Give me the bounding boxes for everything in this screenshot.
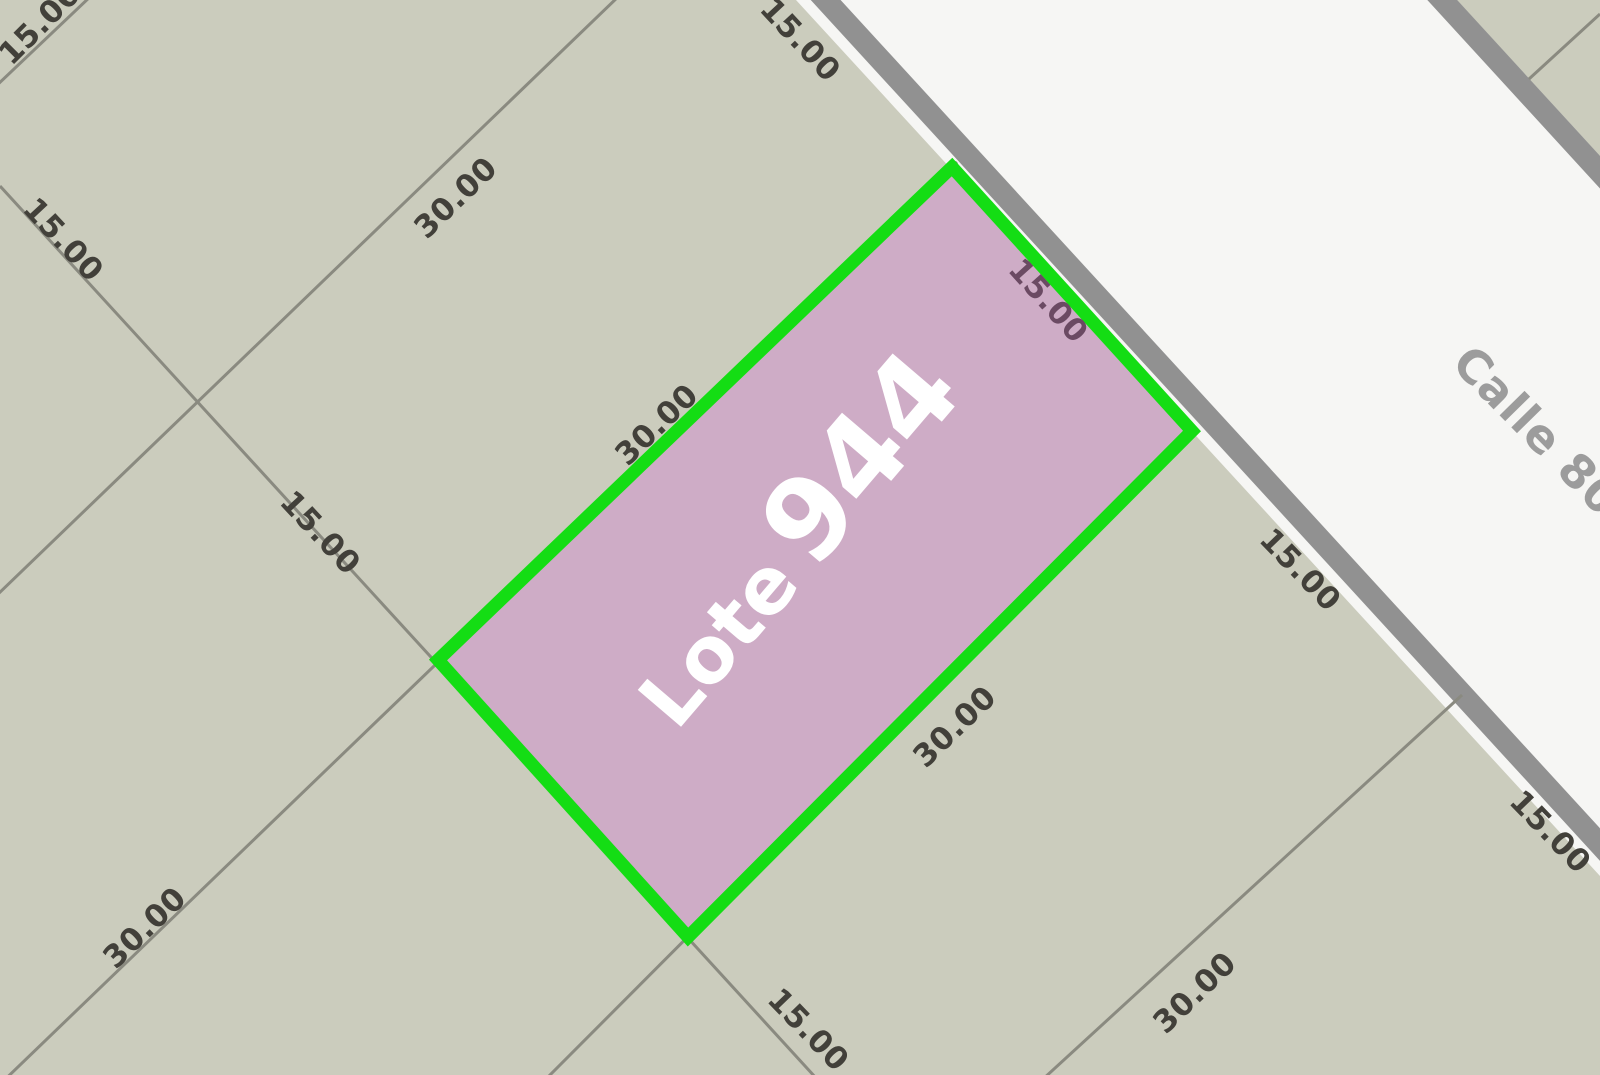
- parcel-map-canvas: 15.0015.0030.0015.0030.0015.0015.0030.00…: [0, 0, 1600, 1075]
- cadastral-map: 15.0015.0030.0015.0030.0015.0015.0030.00…: [0, 0, 1600, 1075]
